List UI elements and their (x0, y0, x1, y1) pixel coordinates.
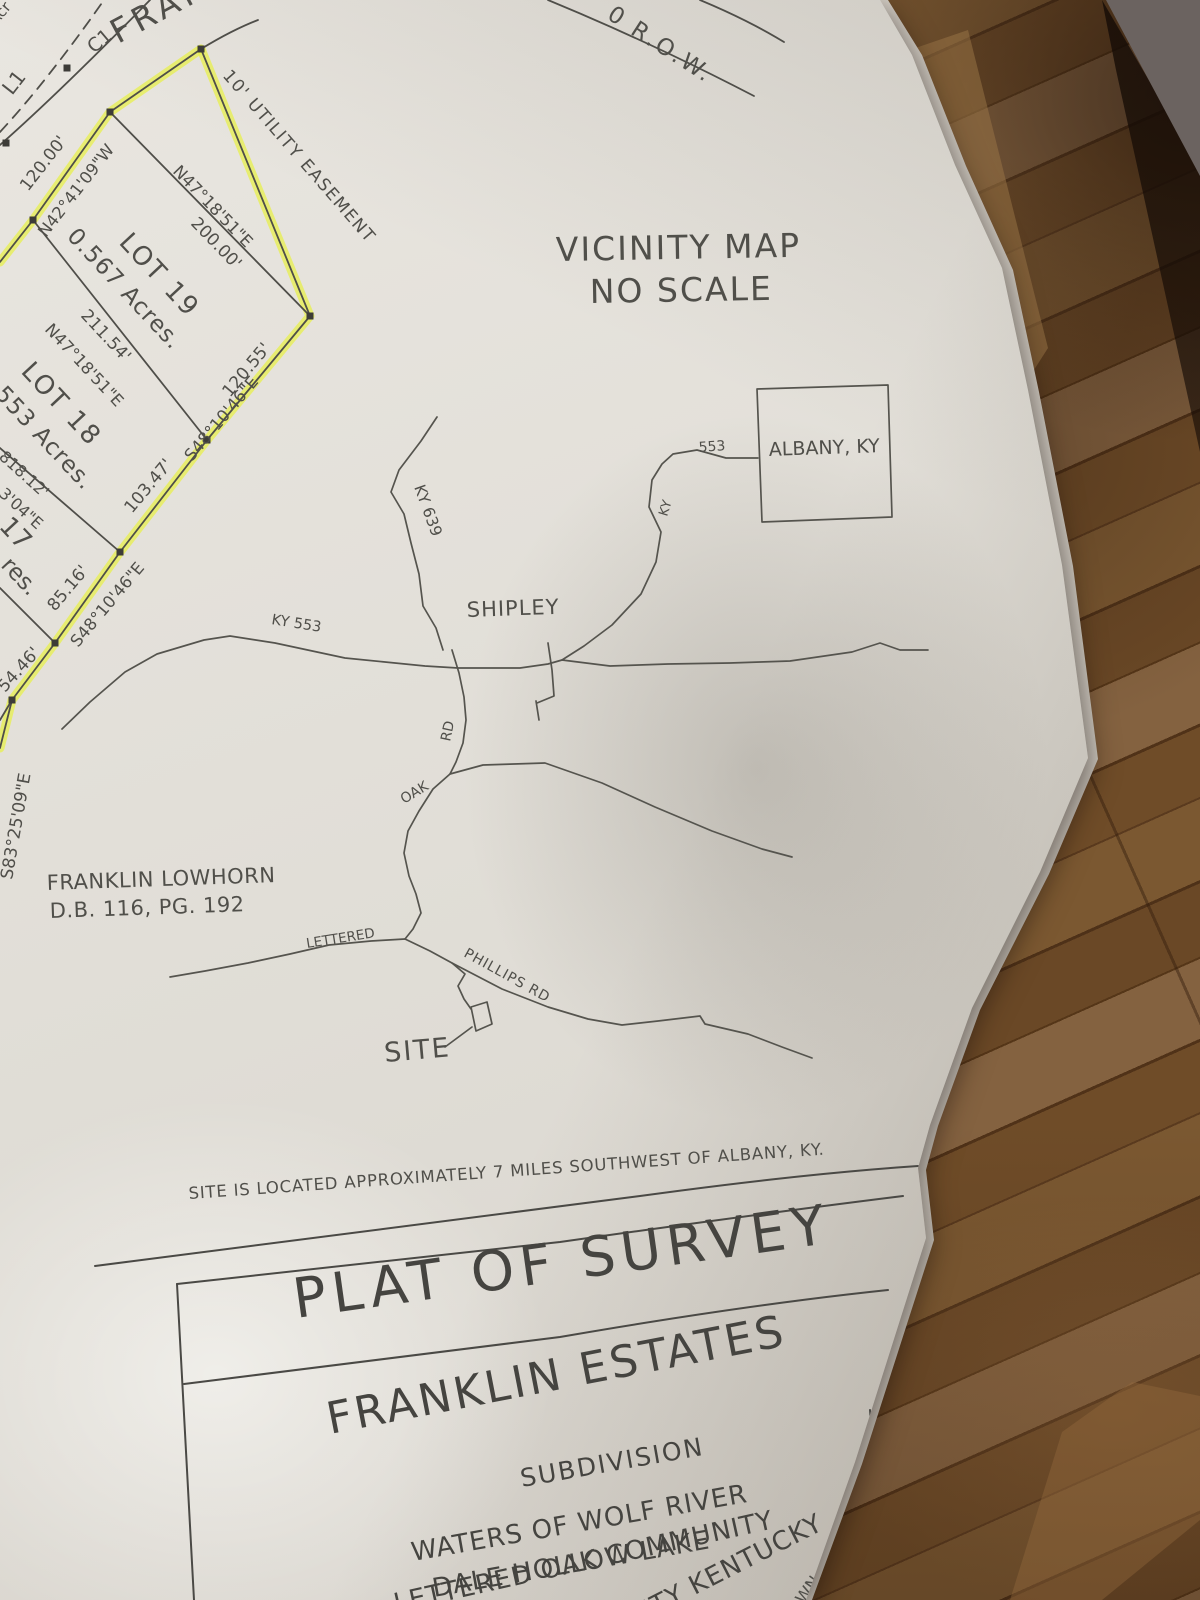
road-lettered (170, 939, 405, 977)
title-block: PLAT OF SURVEY FRANKLIN ESTATES SUBDIVIS… (95, 1166, 918, 1600)
vicinity-map: VICINITY MAP NO SCALE ALBANY, KY 553 (62, 226, 928, 1069)
site-note-label: SITE IS LOCATED APPROXIMATELY 7 MILES SO… (188, 1140, 825, 1203)
shipley-label: SHIPLEY (466, 595, 560, 622)
subdivision-name-label: FRANKLIN ESTATES (322, 1306, 790, 1445)
dim-120-label: 120.00' (16, 132, 71, 195)
road-to-albany (562, 450, 758, 660)
titleblock-left-border (177, 1284, 194, 1600)
paper-wrap: Acr L1 C1 FRAN 0 R.O.W. 10' UTILITY EASE… (0, 0, 1200, 1600)
site-label: SITE (383, 1032, 452, 1069)
road-name-partial-label: FRAN (103, 0, 217, 51)
vicinity-title-line1: VICINITY MAP (555, 226, 801, 269)
ky-vertical-label: KY (656, 498, 675, 518)
row-label: 0 R.O.W. (603, 1, 718, 88)
bearing-s83-label: S83°25'09"E (0, 772, 36, 881)
branch-road-southeast (450, 763, 792, 857)
oak-label: OAK (398, 778, 432, 807)
drawn-partial-label: AWN (786, 1572, 825, 1600)
ky639-label: KY 639 (410, 482, 445, 539)
owner-deed-label: D.B. 116, PG. 192 (49, 892, 245, 923)
ky553-label: KY 553 (270, 612, 322, 636)
road-phillips-jog (405, 939, 471, 1009)
owner-name-label: FRANKLIN LOWHORN (46, 863, 276, 895)
route-553-label: 553 (698, 438, 726, 456)
plat-detail: Acr L1 C1 FRAN 0 R.O.W. 10' UTILITY EASE… (0, 0, 784, 881)
road-centerline (0, 0, 104, 132)
row-road-line-2 (700, 0, 784, 42)
stub-road (536, 643, 554, 720)
photo-of-survey-plat: Acr L1 C1 FRAN 0 R.O.W. 10' UTILITY EASE… (0, 0, 1200, 1600)
albany-label: ALBANY, KY (768, 435, 880, 461)
road-ky553 (62, 636, 928, 729)
rd-label: RD (438, 719, 458, 742)
titleblock-curl-line (846, 1410, 872, 1600)
survey-paper: Acr L1 C1 FRAN 0 R.O.W. 10' UTILITY EASE… (0, 0, 1200, 1600)
vicinity-title-line2: NO SCALE (589, 269, 773, 311)
plat-drawing: Acr L1 C1 FRAN 0 R.O.W. 10' UTILITY EASE… (0, 0, 1200, 1600)
site-marker (471, 1002, 492, 1031)
subdivision-word-label: SUBDIVISION (518, 1432, 706, 1493)
curve-l1-label: L1 (0, 65, 31, 99)
corner-partial-label: Acr (0, 0, 15, 29)
lettered-label: LETTERED (305, 925, 376, 952)
easement-line (201, 49, 310, 316)
